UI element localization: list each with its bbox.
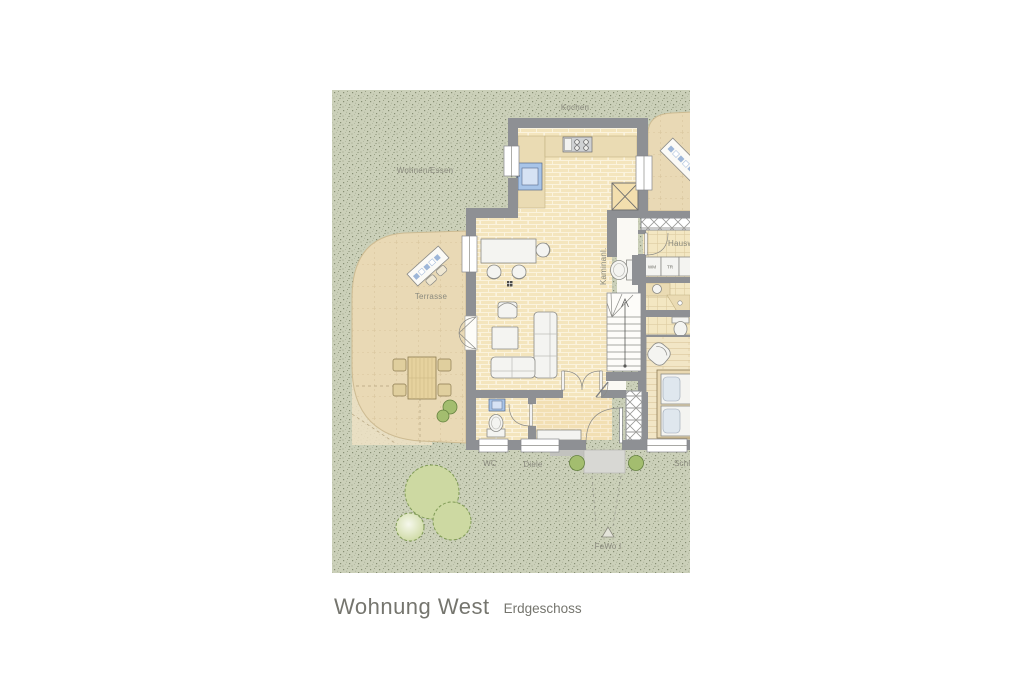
window (521, 439, 559, 452)
tree (396, 513, 424, 541)
bush (629, 456, 644, 471)
floor-plan: WM TR (332, 90, 690, 573)
label-utility: Hauswirtschaft (668, 239, 690, 248)
dryer-label: TR (667, 265, 674, 270)
pergola-strip (641, 218, 690, 230)
dining-chair (512, 265, 526, 279)
dining-chair (536, 243, 550, 257)
window (647, 439, 687, 452)
utility-appliances: WM TR (643, 257, 690, 276)
tree (433, 502, 471, 540)
label-living-dining: Wohnen/Essen (397, 166, 454, 175)
page-title: Wohnung West (334, 594, 490, 619)
double-bed (657, 370, 690, 438)
floor-plan-drawing: WM TR (332, 90, 690, 573)
page-subtitle: Erdgeschoss (504, 601, 582, 616)
entry-closet (626, 391, 642, 440)
washbasin-icon (489, 399, 505, 411)
pillow (663, 409, 680, 433)
staircase (607, 293, 641, 371)
coffee-table (492, 327, 518, 349)
label-bedroom: Schlafen (674, 459, 690, 468)
utility-cabinet (679, 257, 690, 276)
pillow (663, 377, 680, 401)
bush (437, 410, 449, 422)
label-unit: FeWo I (595, 542, 622, 551)
stair-landing-floor (606, 381, 626, 391)
bush (570, 456, 585, 471)
chimney-icon (612, 183, 638, 210)
label-hall: Diele (523, 460, 543, 469)
armchair (498, 302, 517, 318)
bath-sink-icon (653, 285, 662, 294)
window (636, 156, 652, 190)
floorplan-page: { "title": { "main": "Wohnung West", "su… (0, 0, 1024, 683)
window (462, 236, 477, 272)
floor-outlet-icon (507, 281, 513, 287)
window (504, 146, 519, 176)
entry-porch (584, 450, 625, 473)
label-wc: WC (483, 459, 497, 468)
dining-table (481, 239, 536, 263)
window (479, 439, 508, 452)
label-terrace: Terrasse (415, 292, 448, 301)
dining-chair (487, 265, 501, 279)
stove-icon (563, 137, 592, 152)
label-kitchen: Kochen (561, 103, 589, 112)
washer-label: WM (648, 265, 656, 270)
title-block: Wohnung WestErdgeschoss (334, 594, 582, 620)
hall-bench (537, 430, 581, 440)
label-chimney: Kaminanl. (599, 248, 608, 285)
corridor-toilet (611, 260, 634, 280)
